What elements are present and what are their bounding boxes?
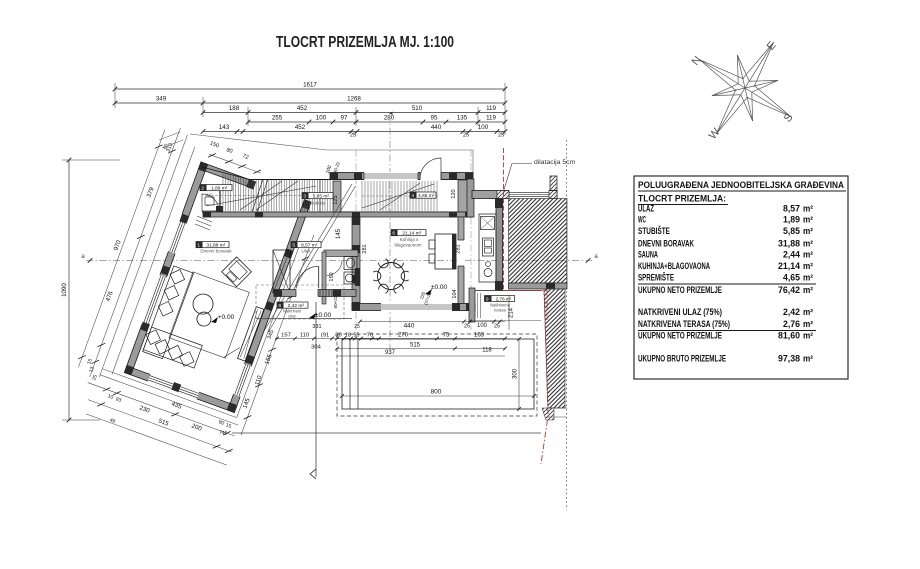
svg-text:100: 100 bbox=[316, 115, 327, 122]
svg-text:5,85 m²: 5,85 m² bbox=[313, 194, 330, 200]
svg-text:terasa: terasa bbox=[494, 308, 506, 313]
svg-text:Kuhinja s: Kuhinja s bbox=[400, 237, 419, 242]
svg-text:WC: WC bbox=[205, 193, 213, 198]
svg-text:25: 25 bbox=[494, 324, 500, 330]
svg-text:2,76 m²: 2,76 m² bbox=[496, 296, 512, 301]
svg-text:163: 163 bbox=[474, 333, 485, 339]
svg-text:81,60: 81,60 bbox=[778, 331, 800, 341]
svg-text:KUHINJA+BLAGOVAONA: KUHINJA+BLAGOVAONA bbox=[638, 261, 710, 271]
svg-text:515: 515 bbox=[410, 343, 421, 349]
svg-text:157: 157 bbox=[281, 333, 291, 339]
svg-text:31,88: 31,88 bbox=[778, 239, 800, 249]
svg-text:145: 145 bbox=[336, 228, 342, 239]
svg-text:m²: m² bbox=[803, 354, 813, 364]
svg-text:ulaz: ulaz bbox=[288, 314, 296, 319]
svg-text:76,42: 76,42 bbox=[778, 285, 800, 295]
svg-text:2: 2 bbox=[201, 186, 204, 192]
svg-text:18: 18 bbox=[345, 333, 351, 339]
svg-text:97: 97 bbox=[341, 115, 348, 122]
svg-text:510: 510 bbox=[412, 105, 423, 112]
svg-text:±0.00: ±0.00 bbox=[431, 284, 448, 291]
svg-text:m²: m² bbox=[803, 215, 813, 225]
svg-text:6: 6 bbox=[392, 231, 395, 237]
svg-text:4: 4 bbox=[411, 193, 414, 199]
svg-text:WC: WC bbox=[638, 215, 646, 225]
svg-text:m²: m² bbox=[803, 319, 813, 329]
svg-text:m²: m² bbox=[803, 307, 813, 317]
svg-text:937: 937 bbox=[385, 350, 396, 356]
svg-text:(91: (91 bbox=[321, 333, 329, 339]
svg-text:UKUPNO NETO PRIZEMLJE: UKUPNO NETO PRIZEMLJE bbox=[638, 331, 722, 341]
svg-text:120: 120 bbox=[451, 189, 457, 198]
svg-text:300: 300 bbox=[513, 368, 519, 379]
svg-text:21,14 m²: 21,14 m² bbox=[402, 231, 421, 237]
svg-text:440: 440 bbox=[431, 124, 442, 131]
svg-text:9: 9 bbox=[486, 296, 489, 301]
svg-text:ULAZ: ULAZ bbox=[638, 204, 654, 214]
svg-text:1617: 1617 bbox=[303, 82, 317, 89]
svg-text:110: 110 bbox=[300, 333, 309, 339]
svg-text:1090: 1090 bbox=[61, 283, 68, 297]
svg-text:119: 119 bbox=[486, 105, 496, 112]
svg-text:8: 8 bbox=[278, 303, 281, 309]
svg-text:1,89: 1,89 bbox=[783, 215, 800, 225]
svg-text:STUBIŠTE: STUBIŠTE bbox=[638, 225, 670, 236]
svg-text:2,42: 2,42 bbox=[783, 307, 800, 317]
svg-text:281: 281 bbox=[456, 244, 462, 253]
svg-text:188: 188 bbox=[229, 105, 240, 112]
svg-text:SAUNA: SAUNA bbox=[638, 250, 658, 260]
svg-text:331: 331 bbox=[312, 324, 321, 330]
svg-text:1268: 1268 bbox=[347, 96, 361, 103]
svg-text:270: 270 bbox=[398, 333, 409, 339]
svg-text:25: 25 bbox=[354, 324, 360, 330]
svg-text:60+22: 60+22 bbox=[333, 295, 338, 308]
svg-text:440: 440 bbox=[404, 323, 415, 330]
svg-text:80: 80 bbox=[335, 333, 341, 339]
svg-text:281: 281 bbox=[362, 244, 368, 253]
svg-text:349: 349 bbox=[156, 96, 167, 103]
svg-text:m²: m² bbox=[803, 273, 813, 283]
svg-text:452: 452 bbox=[295, 124, 306, 131]
svg-text:UKUPNO BRUTO PRIZEMLJE: UKUPNO BRUTO PRIZEMLJE bbox=[638, 354, 726, 364]
svg-text:5,85: 5,85 bbox=[783, 226, 800, 236]
svg-text:Dnevni boravak: Dnevni boravak bbox=[200, 249, 232, 254]
svg-text:280: 280 bbox=[384, 115, 395, 122]
svg-text:DNEVNI BORAVAK: DNEVNI BORAVAK bbox=[638, 239, 694, 249]
svg-text:119: 119 bbox=[486, 115, 496, 122]
svg-text:m²: m² bbox=[803, 204, 813, 214]
svg-text:3: 3 bbox=[303, 194, 306, 200]
svg-text:214: 214 bbox=[509, 307, 515, 318]
svg-text:4,65 m²: 4,65 m² bbox=[418, 193, 435, 199]
svg-text:25: 25 bbox=[498, 133, 504, 139]
svg-text:125: 125 bbox=[333, 195, 339, 204]
svg-text:118: 118 bbox=[482, 348, 492, 354]
svg-text:dilatacija 5cm: dilatacija 5cm bbox=[534, 159, 576, 166]
svg-text:Ulaz: Ulaz bbox=[301, 249, 311, 254]
svg-text:143: 143 bbox=[219, 124, 230, 131]
svg-text:5: 5 bbox=[292, 243, 295, 249]
svg-text:m²: m² bbox=[803, 250, 813, 260]
svg-text:25: 25 bbox=[350, 133, 356, 139]
svg-text:70: 70 bbox=[367, 333, 373, 339]
svg-text:104: 104 bbox=[452, 289, 458, 298]
svg-text:m²: m² bbox=[803, 226, 813, 236]
svg-text:304: 304 bbox=[311, 345, 321, 351]
svg-text:95: 95 bbox=[431, 115, 438, 122]
svg-text:±0.00: ±0.00 bbox=[315, 312, 332, 319]
svg-text:SPREMIŠTE: SPREMIŠTE bbox=[638, 272, 674, 283]
svg-text:452: 452 bbox=[297, 105, 308, 112]
svg-text:4,65: 4,65 bbox=[783, 273, 800, 283]
svg-text:+0.00: +0.00 bbox=[218, 314, 235, 321]
svg-text:POLUUGRAĐENA JEDNOOBITELJSKA G: POLUUGRAĐENA JEDNOOBITELJSKA GRAĐEVINA bbox=[638, 180, 844, 191]
svg-text:m²: m² bbox=[803, 239, 813, 249]
svg-text:TLOCRT PRIZEMLJA MJ. 1:100: TLOCRT PRIZEMLJA MJ. 1:100 bbox=[276, 34, 454, 51]
svg-text:1,89 m²: 1,89 m² bbox=[211, 186, 228, 192]
svg-text:100: 100 bbox=[478, 124, 489, 131]
svg-text:25: 25 bbox=[464, 324, 470, 330]
svg-text:55: 55 bbox=[354, 333, 360, 339]
svg-text:25: 25 bbox=[463, 133, 469, 139]
svg-text:100: 100 bbox=[477, 323, 488, 329]
svg-text:97,38: 97,38 bbox=[778, 354, 800, 364]
svg-text:75: 75 bbox=[443, 333, 450, 339]
svg-text:2,76: 2,76 bbox=[783, 319, 800, 329]
svg-text:m²: m² bbox=[803, 331, 813, 341]
svg-text:8,57: 8,57 bbox=[783, 204, 800, 214]
svg-text:m²: m² bbox=[803, 285, 813, 295]
svg-text:blagovaonom: blagovaonom bbox=[394, 243, 421, 248]
svg-text:NATKRIVENI ULAZ (75%): NATKRIVENI ULAZ (75%) bbox=[638, 307, 722, 317]
svg-text:150: 150 bbox=[329, 272, 335, 281]
svg-text:800: 800 bbox=[431, 389, 442, 396]
svg-text:m²: m² bbox=[803, 261, 813, 271]
svg-text:UKUPNO NETO PRIZEMLJE: UKUPNO NETO PRIZEMLJE bbox=[638, 285, 722, 295]
svg-text:21,14: 21,14 bbox=[778, 261, 800, 271]
svg-text:255: 255 bbox=[272, 115, 283, 122]
svg-text:Stubište: Stubište bbox=[309, 201, 326, 206]
svg-text:2,44: 2,44 bbox=[783, 250, 800, 260]
svg-text:135: 135 bbox=[457, 115, 468, 122]
svg-text:NATKRIVENA TERASA (75%): NATKRIVENA TERASA (75%) bbox=[638, 319, 730, 329]
